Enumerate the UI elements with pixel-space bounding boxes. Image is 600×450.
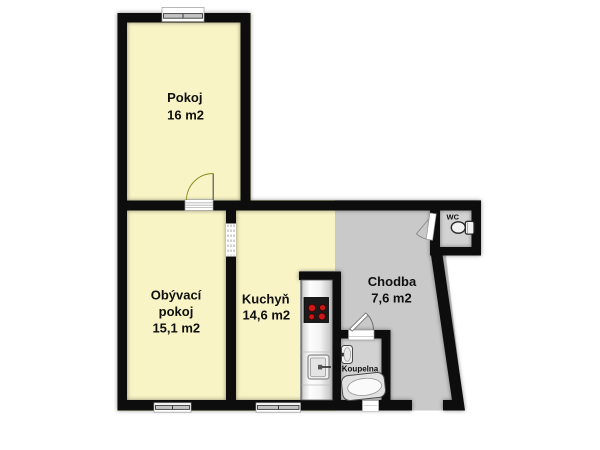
svg-text:Obývací: Obývací — [151, 287, 202, 302]
svg-text:14,6 m2: 14,6 m2 — [242, 308, 290, 323]
svg-text:7,6 m2: 7,6 m2 — [371, 291, 411, 306]
svg-text:Chodba: Chodba — [368, 274, 417, 289]
svg-text:15,1 m2: 15,1 m2 — [152, 321, 200, 336]
svg-text:Koupelna: Koupelna — [342, 364, 379, 373]
svg-text:Kuchyň: Kuchyň — [242, 292, 290, 307]
svg-text:WC: WC — [447, 212, 460, 221]
svg-text:Pokoj: Pokoj — [167, 90, 202, 105]
svg-text:16 m2: 16 m2 — [167, 107, 204, 122]
svg-text:pokoj: pokoj — [159, 304, 194, 319]
